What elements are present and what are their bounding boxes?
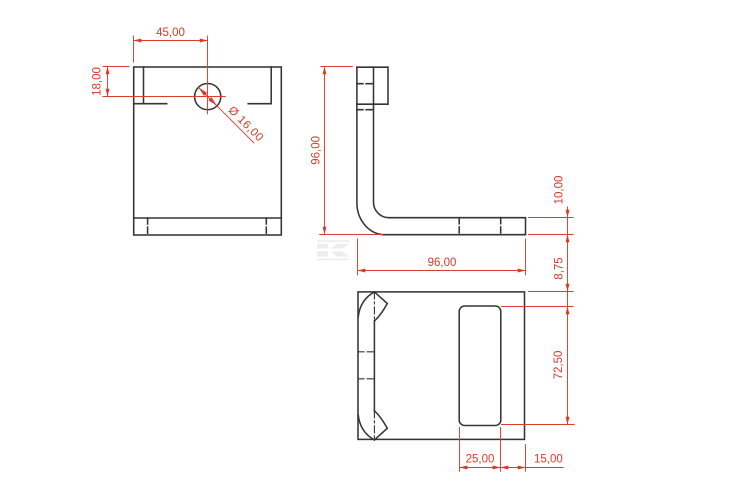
svg-text:8,75: 8,75 (554, 257, 566, 279)
svg-text:96,00: 96,00 (311, 136, 323, 165)
svg-text:45,00: 45,00 (156, 27, 185, 39)
svg-text:Ø 16,00: Ø 16,00 (226, 104, 266, 144)
svg-text:18,00: 18,00 (91, 67, 103, 96)
svg-text:15,00: 15,00 (534, 454, 563, 466)
svg-text:25,00: 25,00 (466, 453, 495, 465)
svg-text:72,50: 72,50 (553, 351, 565, 380)
svg-text:10,00: 10,00 (554, 176, 566, 205)
svg-text:96,00: 96,00 (428, 257, 457, 269)
